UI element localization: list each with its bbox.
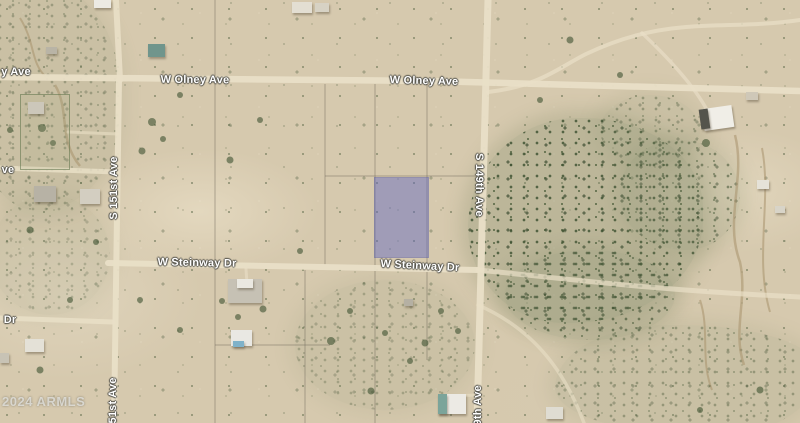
building [757, 180, 769, 189]
building [25, 339, 44, 352]
building [94, 0, 111, 8]
track-northeast [488, 20, 800, 92]
building [746, 92, 758, 100]
road-151st-ave [114, 80, 119, 423]
building [775, 206, 785, 213]
road-label-149th-mid: S 149th Ave [473, 153, 485, 217]
building [438, 394, 447, 414]
satellite-map[interactable]: W Olney Ave W Olney Ave y Ave ve Dr W St… [0, 0, 800, 423]
road-label-dr-edge: Dr [4, 314, 17, 326]
road-151st-ave-north [116, 0, 120, 80]
building [237, 279, 253, 288]
building [148, 44, 165, 57]
track-driveway-left [68, 132, 118, 134]
track-southeast [478, 305, 584, 423]
armls-watermark: 2024 ARMLS [2, 394, 85, 409]
road-label-olney-edge: y Ave [1, 66, 31, 78]
building [546, 407, 563, 419]
road-label-olney-right: W Olney Ave [390, 74, 459, 88]
road-label-steinway-left: W Steinway Dr [157, 256, 236, 269]
road-label-ave-edge: ve [2, 164, 15, 176]
swimming-pool [233, 341, 244, 347]
parcel-boundary-lines [215, 0, 478, 423]
building [404, 299, 413, 306]
building [80, 189, 100, 204]
road-label-olney-left: W Olney Ave [161, 74, 230, 87]
building [34, 186, 56, 202]
building [46, 47, 57, 54]
building [0, 353, 9, 363]
building [292, 2, 312, 13]
track-driveway-ne [642, 33, 707, 110]
building [28, 102, 44, 114]
road-label-151st-mid: S 151st Ave [108, 156, 120, 219]
highlighted-parcel [375, 178, 428, 257]
road-label-151st-bottom: S 151st Ave [107, 377, 119, 423]
road-label-149th-bottom: S 149th Ave [472, 385, 484, 423]
road-steinway-dr-east [478, 270, 800, 297]
road-west-dr [0, 318, 113, 322]
building [315, 3, 329, 12]
